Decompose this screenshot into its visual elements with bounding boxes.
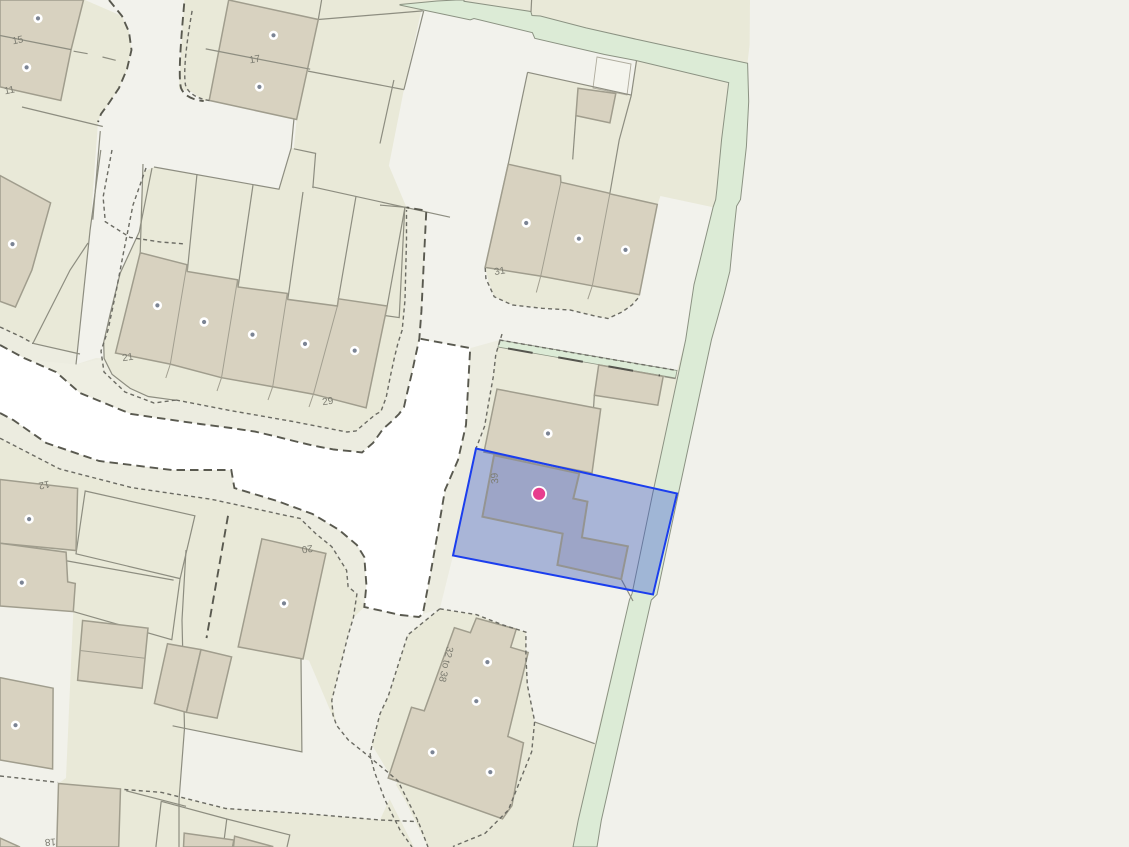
svg-text:21: 21 bbox=[121, 351, 134, 364]
svg-text:18: 18 bbox=[44, 835, 56, 847]
svg-text:29: 29 bbox=[321, 395, 334, 408]
svg-text:39: 39 bbox=[489, 472, 501, 485]
